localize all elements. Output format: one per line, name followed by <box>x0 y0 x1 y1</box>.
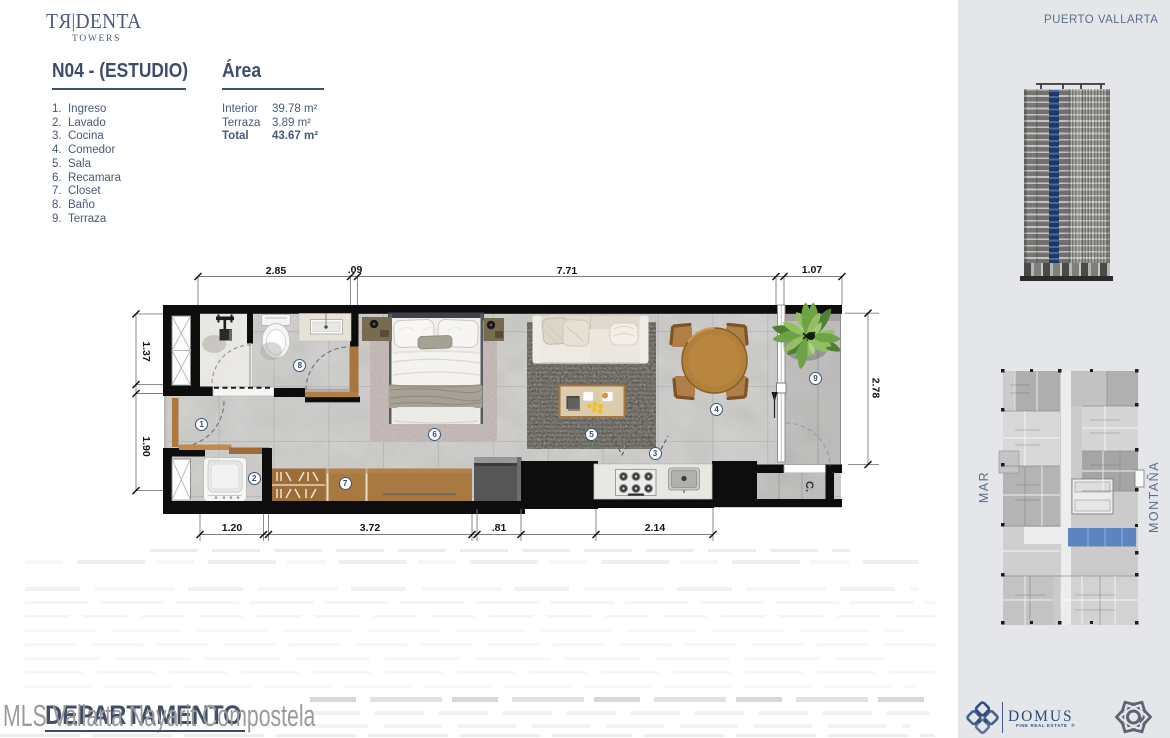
svg-text:2.14: 2.14 <box>645 522 666 534</box>
svg-text:1.90: 1.90 <box>140 436 152 457</box>
svg-text:.81: .81 <box>492 522 507 534</box>
svg-text:2.85: 2.85 <box>266 265 287 277</box>
svg-text:C.: C. <box>803 481 815 492</box>
svg-text:1.07: 1.07 <box>802 264 823 276</box>
svg-text:1.37: 1.37 <box>140 341 152 362</box>
svg-text:3.72: 3.72 <box>360 522 381 534</box>
svg-text:7.71: 7.71 <box>557 265 578 277</box>
svg-text:.09: .09 <box>348 264 363 276</box>
svg-text:1.20: 1.20 <box>222 522 243 534</box>
svg-text:2.78: 2.78 <box>870 378 882 399</box>
